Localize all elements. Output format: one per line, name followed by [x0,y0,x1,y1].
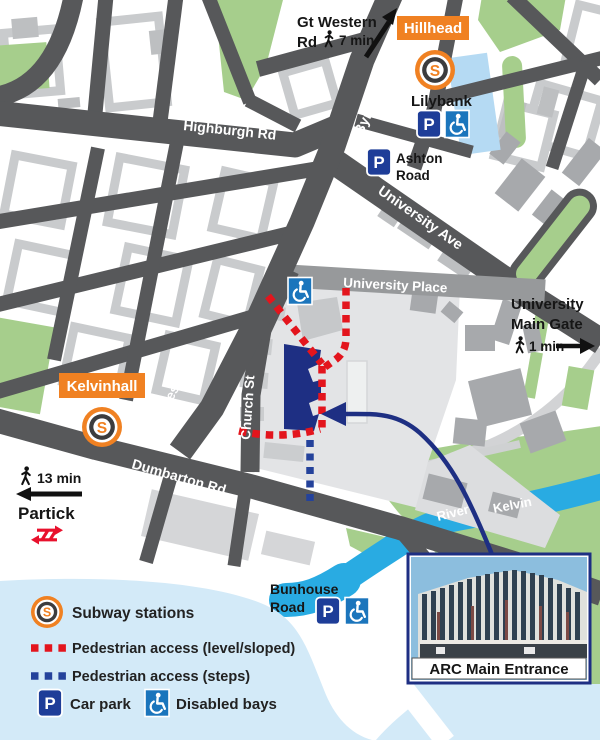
legend-level-label: Pedestrian access (level/sloped) [72,641,295,657]
label-gt-western-1: Gt Western [297,14,377,31]
legend-carpark-icon [38,690,62,717]
label-kelvinhall: Kelvinhall [67,378,138,395]
map-svg: S P [0,0,600,740]
legend-disabled-icon [145,690,169,717]
label-lilybank: Lilybank [411,93,473,110]
carpark-icon-ashton [367,149,391,176]
subway-icon-kelvinhall [82,407,122,447]
legend-disabled-label: Disabled bays [176,696,277,713]
label-gt-western-2: Rd [297,34,317,51]
arc-building [284,344,321,431]
carpark-icon-bunhouse [316,598,340,625]
label-gt-western-time: 7 min [339,33,374,48]
legend-subway-icon [31,596,63,628]
label-bunhouse-1: Bunhouse [270,581,339,597]
label-partick: Partick [18,504,75,523]
label-hillhead: Hillhead [404,20,462,37]
label-ashton-1: Ashton [396,151,443,166]
photo-inset: ARC Main Entrance [408,554,590,683]
label-main-gate-1: University [511,296,584,313]
label-main-gate-2: Main Gate [511,316,583,333]
disabled-icon-lilybank [445,111,469,138]
legend-subway-label: Subway stations [72,605,194,622]
subway-icon-hillhead [415,50,455,90]
label-ashton-2: Road [396,168,430,183]
disabled-icon-university-place [288,278,312,305]
photo-entrance [420,644,587,658]
label-partick-time: 13 min [37,470,81,486]
carpark-icon-lilybank [417,111,441,138]
photo-caption: ARC Main Entrance [429,661,568,678]
label-bunhouse-2: Road [270,599,305,615]
legend-carpark-label: Car park [70,696,132,713]
campus-access-map: S P [0,0,600,740]
disabled-icon-bunhouse [345,598,369,625]
legend-steps-label: Pedestrian access (steps) [72,669,250,685]
